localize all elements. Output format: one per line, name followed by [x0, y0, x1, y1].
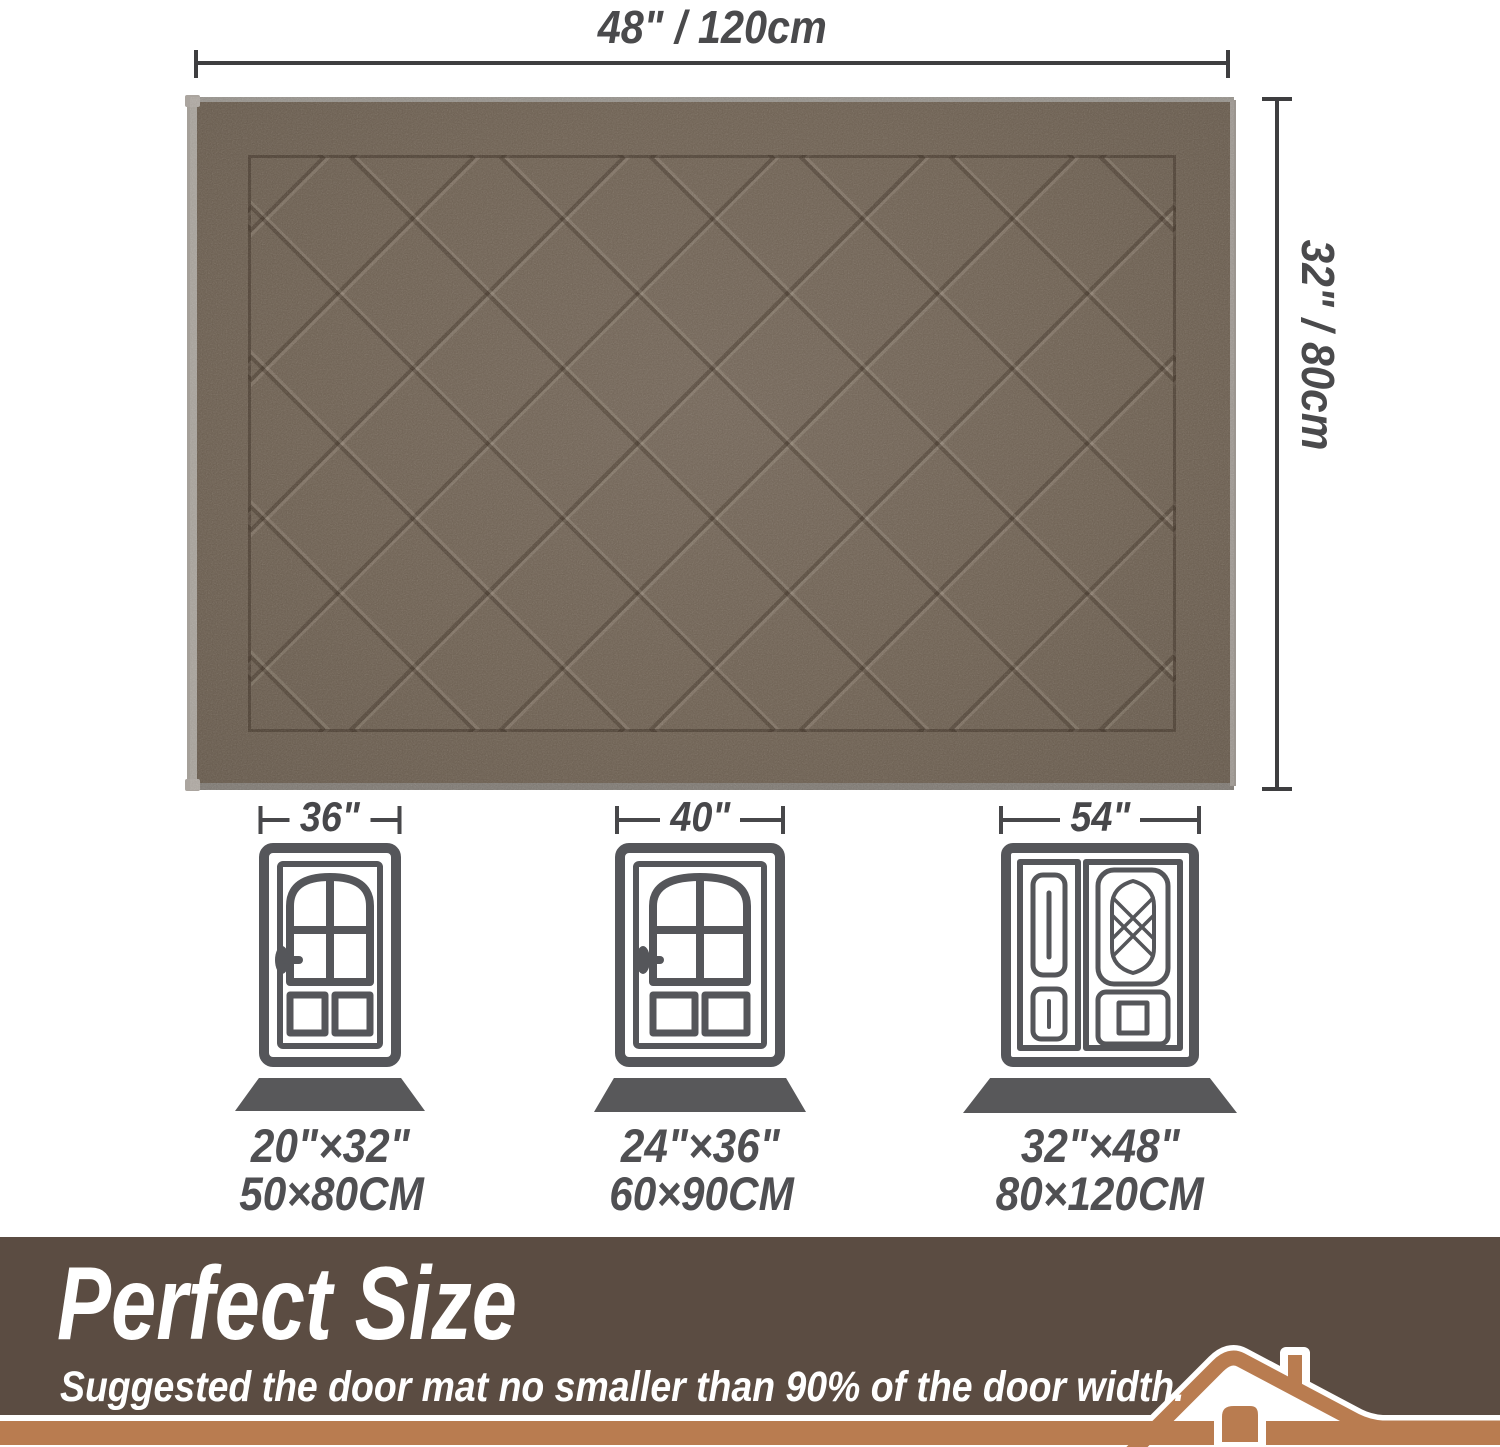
- door-width-value: 36": [300, 793, 360, 841]
- mat-size-inches-value: 20"×32": [251, 1118, 410, 1173]
- single-door-icon: [259, 843, 401, 1067]
- mat-size-cm: 60×90CM: [599, 1166, 801, 1221]
- mat-edge-binding: [190, 783, 1234, 790]
- door-width-dimension: 54": [999, 802, 1201, 838]
- dimension-line: [194, 61, 1230, 65]
- dimension-end-tick: [1262, 97, 1292, 101]
- banner-title: Perfect Size: [57, 1249, 517, 1359]
- mat-width-label: 48" / 120cm: [194, 0, 1230, 54]
- mat-corner-binding: [185, 95, 200, 107]
- mat-width-value: 48" / 120cm: [597, 0, 826, 54]
- door-width-dimension: 36": [259, 802, 402, 838]
- dimension-line: [1140, 818, 1197, 822]
- mat-size-cm-value: 50×80CM: [239, 1166, 424, 1221]
- single-door-icon: [615, 843, 785, 1067]
- mat-size-cm: 80×120CM: [960, 1166, 1240, 1221]
- dimension-line: [619, 818, 660, 822]
- doormat-silhouette: [594, 1078, 806, 1112]
- dimension-end-tick: [398, 806, 402, 834]
- door-size-example-2: 40" 24"×36" 60×90CM: [599, 800, 801, 1220]
- mat-size-inches: 32"×48": [960, 1118, 1240, 1173]
- dimension-line: [740, 818, 781, 822]
- dimension-line: [263, 818, 290, 822]
- door-width-dimension: 40": [615, 802, 785, 838]
- double-door-icon: [1001, 843, 1199, 1067]
- dimension-end-tick: [1226, 50, 1230, 78]
- mat-width-dimension: 48" / 120cm: [194, 0, 1230, 84]
- dimension-line: [1003, 818, 1060, 822]
- mat-size-cm: 50×80CM: [229, 1166, 431, 1221]
- mat-height-label: 32" / 80cm: [1291, 240, 1345, 451]
- dimension-line: [1275, 97, 1279, 791]
- door-width-label: 54": [1060, 793, 1141, 841]
- diamond-pattern: [248, 155, 1176, 732]
- dimension-end-tick: [1197, 806, 1201, 834]
- mat-size-inches: 20"×32": [229, 1118, 431, 1173]
- mat-corner-binding: [185, 779, 200, 791]
- mat-size-cm-value: 60×90CM: [609, 1166, 794, 1221]
- banner-accent-strip: [0, 1421, 1500, 1445]
- doormat-silhouette: [235, 1078, 425, 1111]
- door-size-example-3: 54" 32"×48" 80×120CM: [960, 800, 1240, 1220]
- dimension-line: [370, 818, 397, 822]
- mat-size-inches: 24"×36": [599, 1118, 801, 1173]
- mat-size-inches-value: 32"×48": [1021, 1118, 1180, 1173]
- mat-size-inches-value: 24"×36": [621, 1118, 780, 1173]
- dimension-end-tick: [1262, 787, 1292, 791]
- mat-edge-binding: [187, 99, 197, 787]
- mat-edge-binding: [1230, 100, 1236, 786]
- product-size-infographic: 48" / 120cm 32" / 80cm 36": [0, 0, 1500, 1447]
- mat-size-cm-value: 80×120CM: [996, 1166, 1204, 1221]
- door-width-value: 54": [1070, 793, 1130, 841]
- door-width-value: 40": [670, 793, 730, 841]
- dimension-end-tick: [194, 50, 198, 78]
- door-size-example-1: 36" 20"×32" 50×80CM: [229, 800, 431, 1220]
- door-width-label: 40": [660, 793, 741, 841]
- mat-edge-binding: [190, 97, 1234, 102]
- doormat-image: [190, 97, 1234, 790]
- house-door: [1218, 1402, 1262, 1446]
- banner-subtitle: Suggested the door mat no smaller than 9…: [60, 1363, 1184, 1412]
- doormat-silhouette: [963, 1078, 1237, 1113]
- dimension-end-tick: [781, 806, 785, 834]
- mat-height-dimension: [1262, 97, 1292, 791]
- door-width-label: 36": [290, 793, 371, 841]
